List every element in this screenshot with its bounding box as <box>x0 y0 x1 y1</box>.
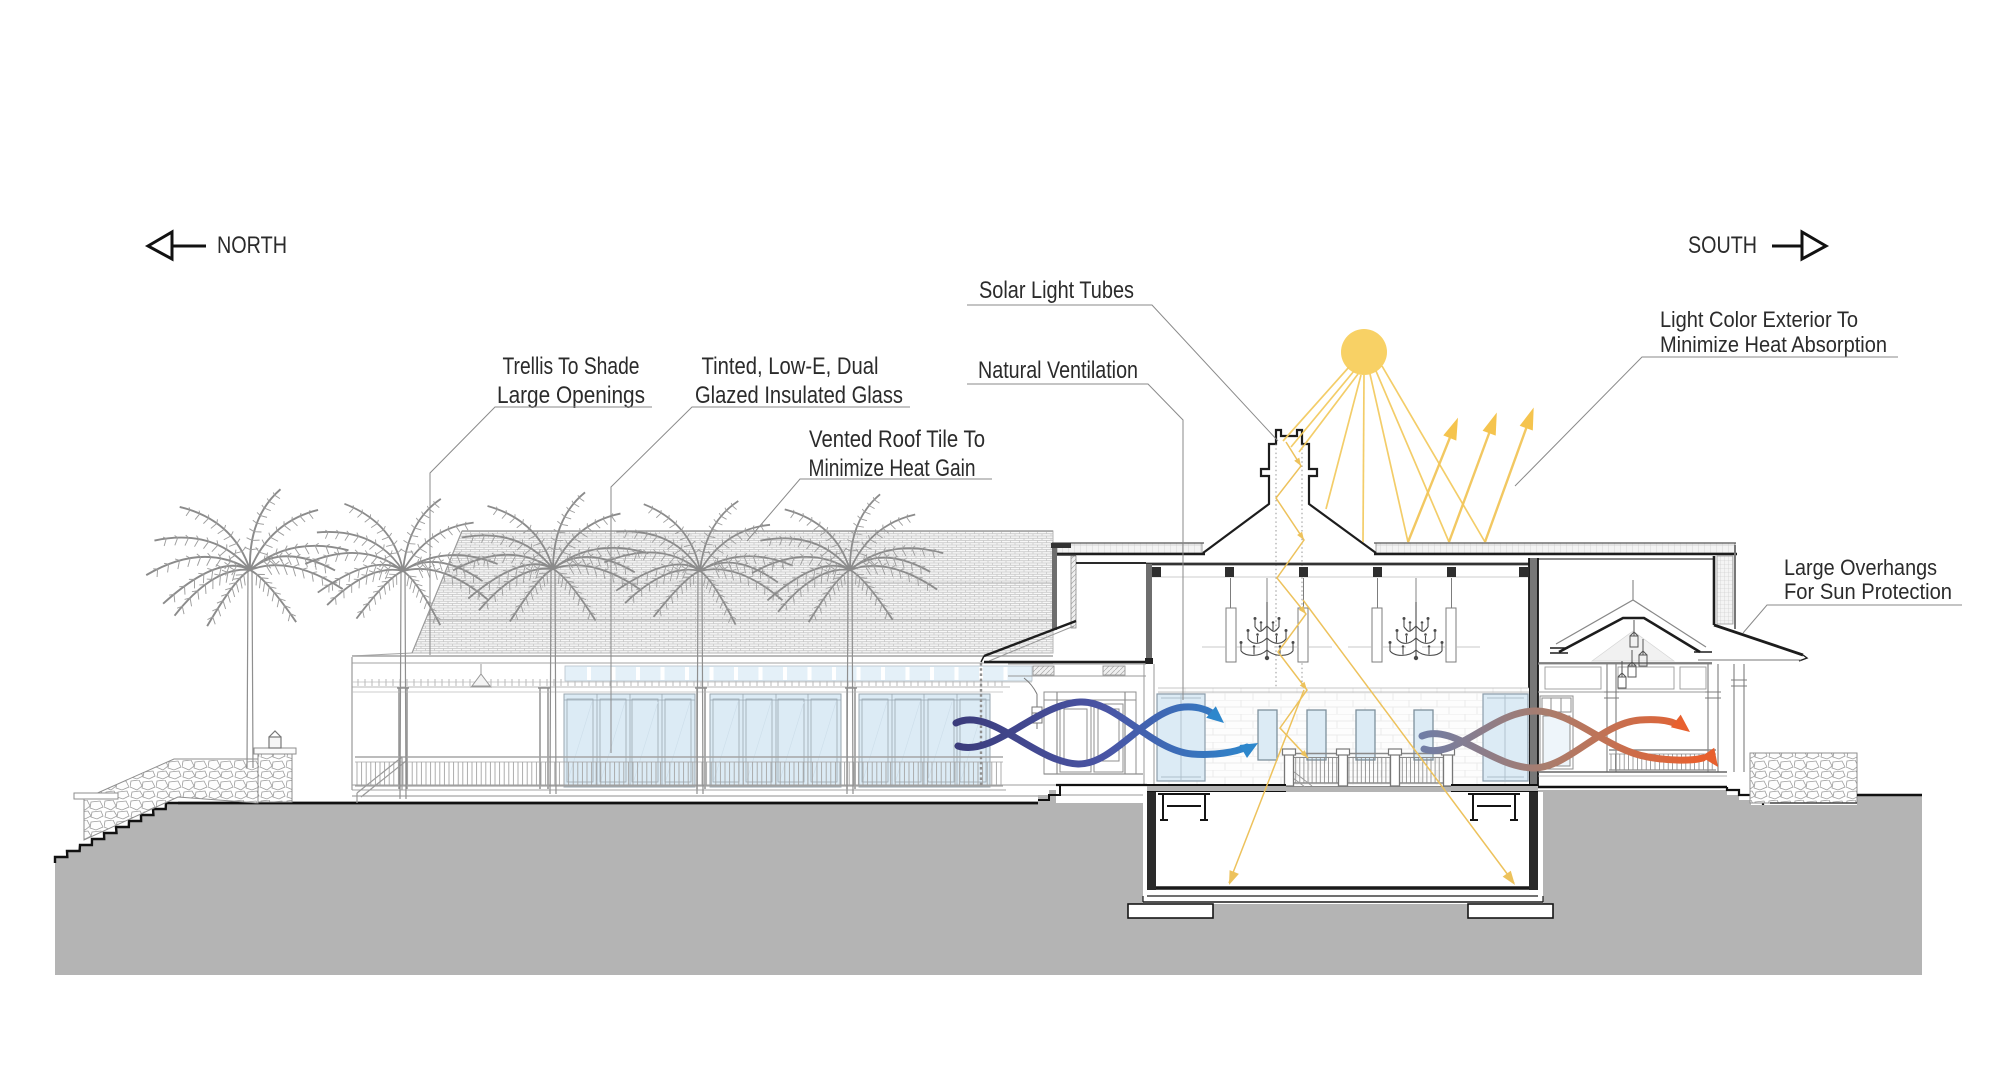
svg-text:Vented Roof Tile To: Vented Roof Tile To <box>809 426 985 453</box>
svg-text:Glazed Insulated Glass: Glazed Insulated Glass <box>695 382 903 409</box>
svg-text:Trellis To Shade: Trellis To Shade <box>503 353 640 380</box>
svg-text:Light Color Exterior To: Light Color Exterior To <box>1660 307 1858 332</box>
svg-text:Minimize Heat Gain: Minimize Heat Gain <box>809 455 976 482</box>
svg-text:SOUTH: SOUTH <box>1688 232 1757 259</box>
svg-text:Minimize Heat Absorption: Minimize Heat Absorption <box>1660 332 1887 357</box>
svg-text:For Sun Protection: For Sun Protection <box>1784 579 1952 604</box>
svg-text:Tinted, Low-E, Dual: Tinted, Low-E, Dual <box>702 353 879 380</box>
svg-text:NORTH: NORTH <box>217 232 287 259</box>
svg-text:Large Openings: Large Openings <box>497 382 645 409</box>
svg-text:Solar Light Tubes: Solar Light Tubes <box>979 277 1134 304</box>
svg-text:Natural Ventilation: Natural Ventilation <box>978 357 1138 384</box>
svg-text:Large Overhangs: Large Overhangs <box>1784 555 1937 580</box>
